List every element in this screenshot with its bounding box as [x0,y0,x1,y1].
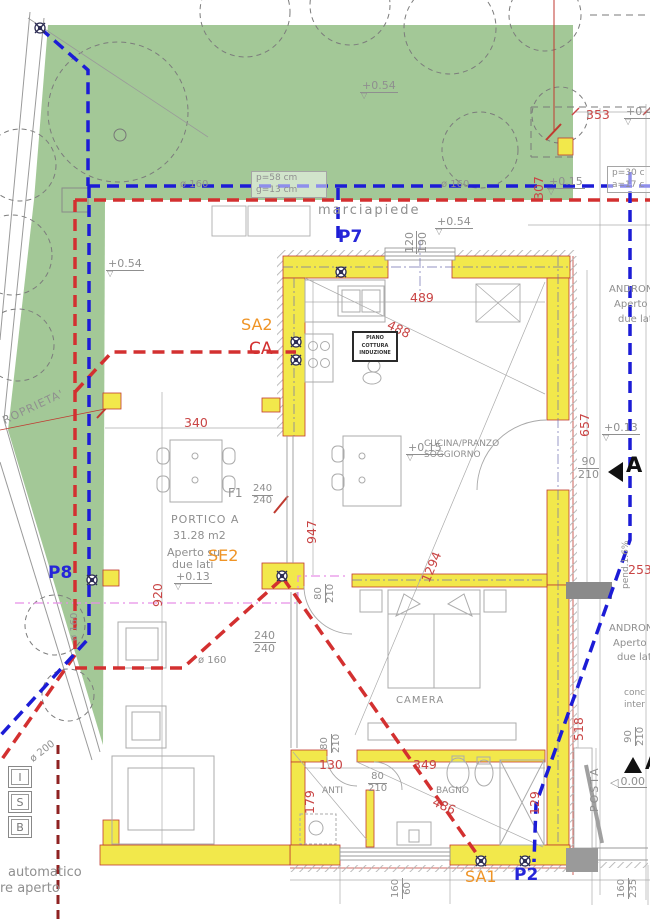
level-triangle-icon: ▽ [436,228,442,236]
sidewalk-steps [212,206,310,236]
portico-table [157,440,235,502]
dim-657: 657 [578,413,592,437]
level-marker: +0.13▽ [602,422,640,442]
dim-179: 179 [303,790,317,814]
androne2-open2: due lati [617,652,650,664]
anchor-icon [87,575,97,585]
bed [360,590,516,740]
level-triangle-icon: ▽ [175,583,181,591]
room-label-bagno: BAGNO [436,786,469,796]
dim-353: 353 [586,108,610,122]
level-marker: ◁0.00 [610,776,647,788]
level-triangle-icon: ▽ [361,92,367,100]
dim-door-right: 90210 [578,456,599,480]
level-marker: +0.54▽ [106,258,144,278]
valve-box-s: S [8,791,32,813]
section-arrow-icon [608,462,623,482]
dim-349: 349 [413,758,437,772]
anchor-icon [291,337,301,347]
pipe-note-line: g=13 cm [256,185,322,197]
pillar [103,393,121,409]
shelf [566,582,612,599]
pipe-diameter: ø 160 [180,179,208,191]
level-triangle-icon: ▽ [407,454,413,462]
dim-portico-window: 240240 [253,630,276,654]
level-marker: +0.13▽ [174,571,212,591]
section-letter: A [626,453,642,477]
dim-340: 340 [184,416,208,430]
pillar [262,398,280,412]
pipe-note-box: p=58 cm g=13 cm [251,171,327,198]
anchor-icon [35,23,45,33]
note-inter: inter [624,700,645,710]
anchor-icon [336,267,346,277]
level-triangle-icon: ◁ [610,777,618,788]
cooktop-note: PIANOCOTTURAINDUZIONE [352,331,398,362]
window-f1-label: F1 [228,487,243,501]
pipe-label-p8: P8 [48,564,72,584]
level-marker: +0.54▽ [435,216,473,236]
dim-129: 129 [528,791,542,815]
pillar [103,570,119,586]
pipe-diameter: ø 160 [69,613,81,641]
bench [368,723,516,740]
dim-f1: 240240 [252,484,273,506]
androne2-open1: Aperto [613,638,647,650]
androne-open2: due lati [618,314,650,326]
pipe-note-line: p=30 c [612,168,650,180]
level-triangle-icon: ▽ [107,270,113,278]
note-conc: conc [624,688,645,698]
dim-518: 518 [572,717,586,741]
gate-note1: automatico [8,866,82,881]
anchor-icon [476,856,486,866]
room-label-androne2: ANDRONE [609,623,650,635]
section-arrow-icon [624,757,642,773]
anchor-icon [277,571,287,581]
dim-door-bagno: 80210 [368,772,387,794]
floor-plan: marciapiede +0.54▽ +0.54▽ +0.54▽ +0.15▽ … [0,0,650,919]
dim-489: 489 [410,291,434,305]
level-marker: +0.15▽ [547,176,585,196]
pipe-diameter: ø 160 [441,179,469,191]
dim-top-window: 120190 [404,231,428,254]
building [100,138,648,872]
section-letter: A [645,753,650,775]
dim-door-camera: 80210 [314,584,336,603]
pipe-label-se2: SE2 [208,547,238,565]
room-label-cucina2: SOGGIORNO [424,450,481,460]
dim-door-androne: 90210 [624,727,646,746]
dim-253: 253 [628,563,650,577]
anchor-icon [291,355,301,365]
pipe-label-p7: P7 [338,228,362,248]
nightstand [360,590,382,612]
pipe-note-box: p=30 c a=17 c [607,166,650,193]
pipe-label-sa1: SA1 [465,868,497,886]
androne-open1: Aperto [614,299,648,311]
room-label-androne: ANDRONE [609,284,650,296]
room-label-portico: PORTICO A [171,514,239,527]
stove [305,334,333,382]
window-bagno [340,848,450,860]
dining-table-cucina [332,436,401,506]
door-cucina [477,420,547,490]
dim-door-anti: 80210 [320,734,342,753]
pipe-note-line: a=17 c [612,180,650,192]
dim-window-posta: 160235 [617,878,639,899]
pipe-note-line: p=58 cm [256,173,322,185]
level-triangle-icon: ▽ [625,118,631,126]
dim-307: 307 [532,176,546,200]
pipe-label-sa2: SA2 [241,316,273,334]
gate-pillar [558,138,573,155]
posta-label: POSTA [589,766,602,812]
pillar [103,820,119,845]
gate-note2: re aperto [0,882,60,897]
valve-box-i: I [8,766,32,788]
room-label-camera: CAMERA [396,695,444,707]
valve-box-b: B [8,816,32,838]
dim-window-bagno: 16060 [391,878,413,899]
room-label-cucina: CUCINA/PRANZO [424,439,499,449]
level-triangle-icon: ▽ [548,188,554,196]
level-marker: +0.54▽ [360,80,398,100]
mailbox [566,848,598,872]
pipe-label-p2: P2 [514,866,538,886]
pipe-label-ca: CA [249,340,273,360]
dim-947: 947 [305,520,319,544]
level-marker: +0.4▽ [624,106,650,126]
dim-130: 130 [319,758,343,772]
pipe-diameter: ø 160 [198,655,226,667]
plan-drawing [0,0,650,919]
portico-area: 31.28 m2 [173,530,226,543]
person-figure [368,360,380,372]
nightstand [484,590,506,612]
level-triangle-icon: ▽ [603,434,609,442]
sidewalk-label: marciapiede [318,204,421,219]
room-label-anti: ANTI [322,786,343,796]
dim-920: 920 [151,583,165,607]
